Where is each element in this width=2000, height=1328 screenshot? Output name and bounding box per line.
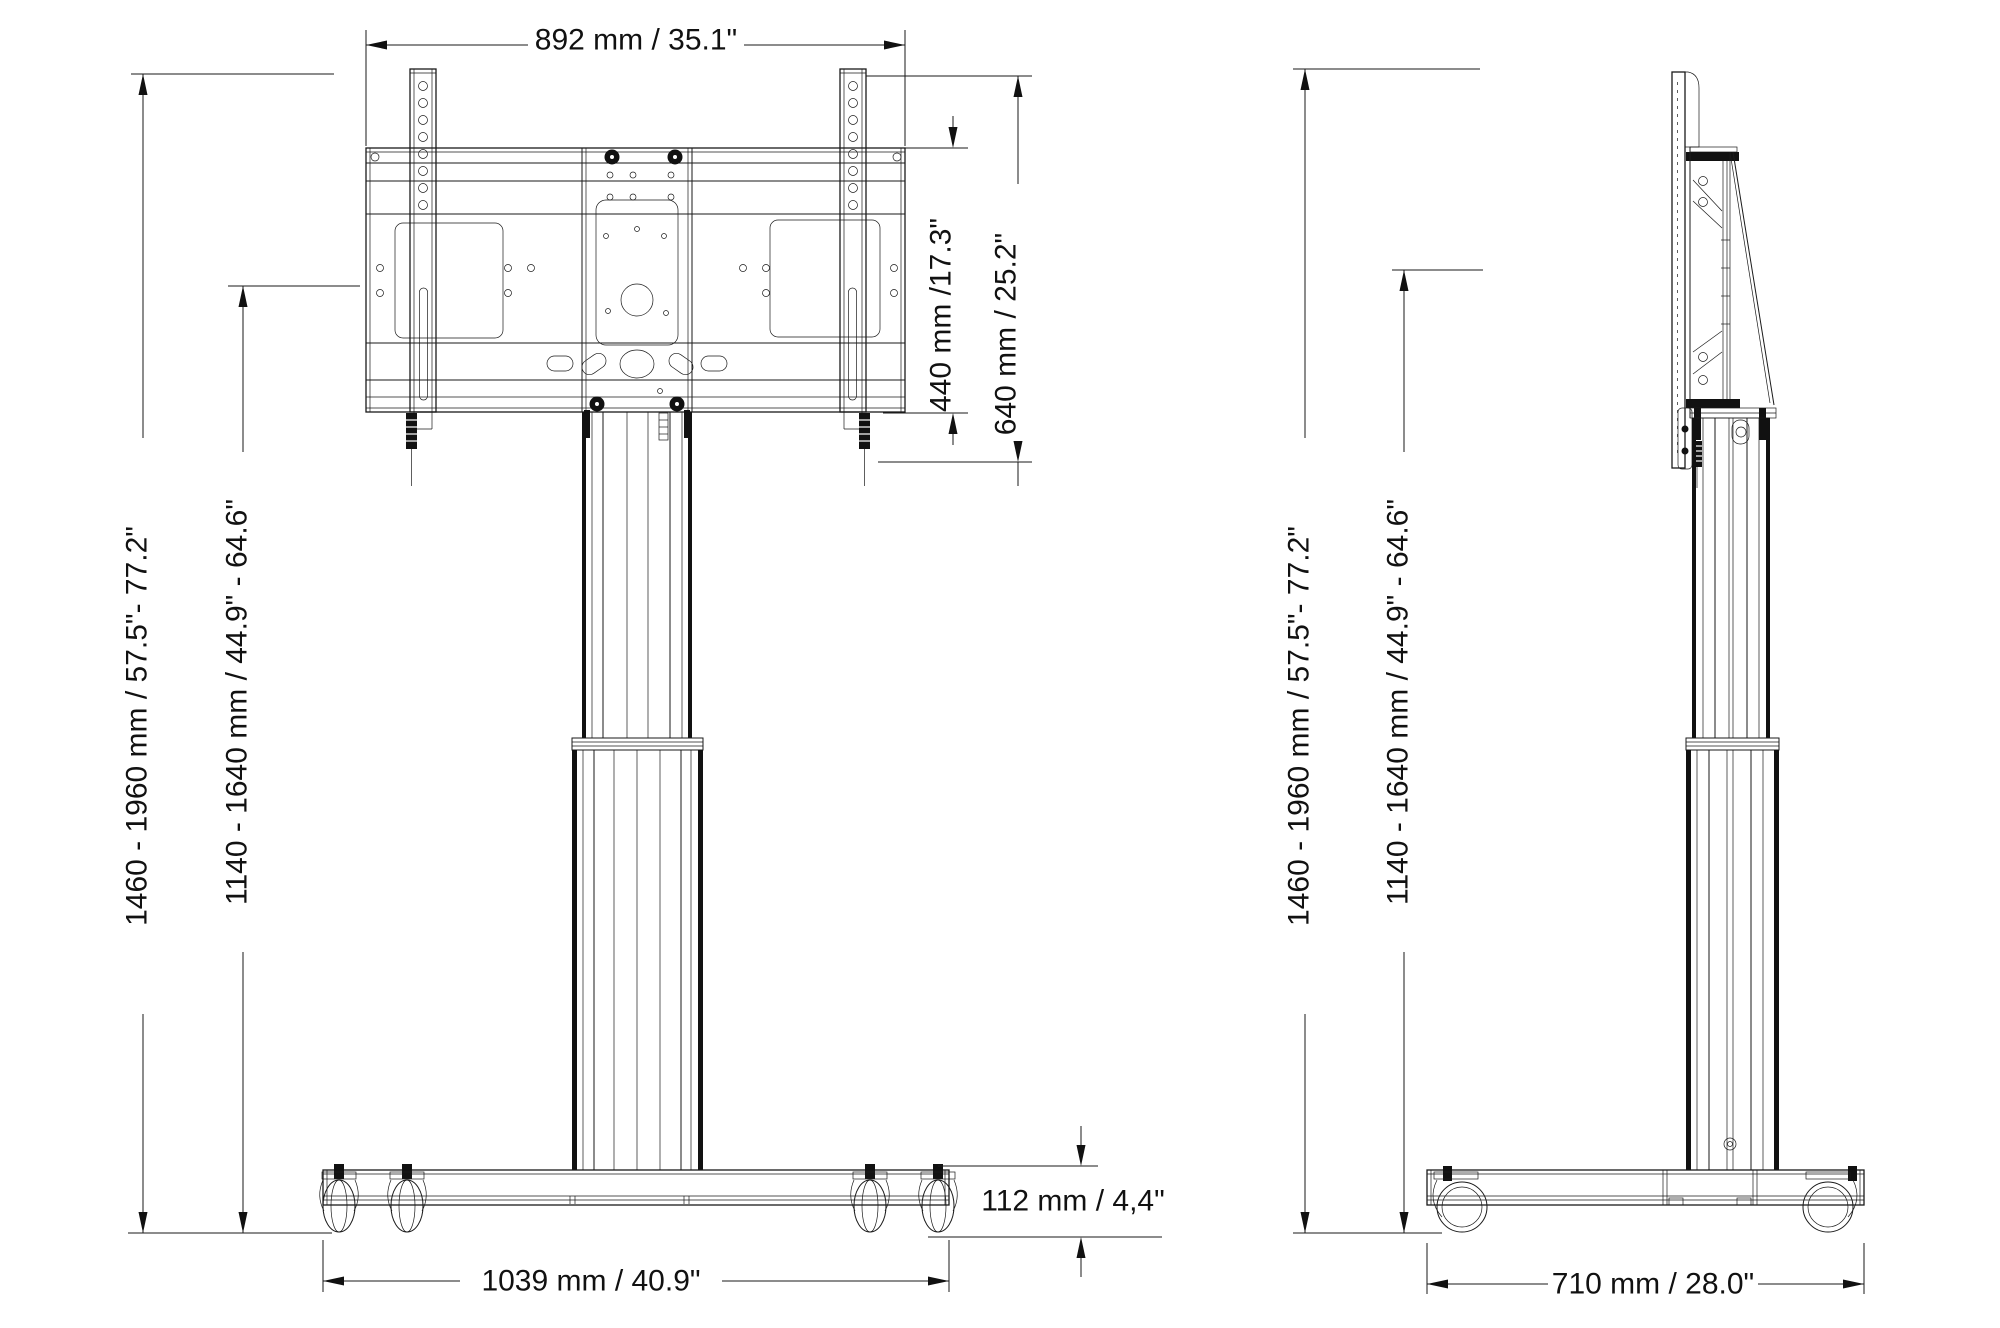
- center-hole: [621, 284, 653, 316]
- side-base: [1427, 1166, 1864, 1205]
- drawing-svg: 892 mm / 35.1" 440 mm /17.3" 640 mm / 25…: [0, 0, 2000, 1328]
- front-mounting-plate: [366, 148, 905, 412]
- dim-front-vesa-height: 440 mm /17.3": [883, 116, 968, 445]
- dim-front-screen-center-height: 1140 - 1640 mm / 44.9" - 64.6": [221, 286, 361, 1233]
- dim-label-front-base-height: 112 mm / 4,4": [981, 1185, 1165, 1218]
- dim-side-screen-center-height: 1140 - 1640 mm / 44.9" - 64.6": [1382, 270, 1484, 1233]
- front-vesa-rail-left: [406, 69, 436, 486]
- dim-label-side-screen-center-height: 1140 - 1640 mm / 44.9" - 64.6": [1382, 499, 1415, 905]
- dim-label-side-total-height: 1460 - 1960 mm / 57.5"- 77.2": [1283, 526, 1316, 926]
- side-column: [1686, 418, 1779, 1170]
- front-clamp-pins: [584, 410, 690, 440]
- dim-label-front-base-width: 1039 mm / 40.9": [481, 1265, 700, 1298]
- front-view: [320, 69, 958, 1232]
- front-base: [323, 1170, 949, 1205]
- front-vesa-rail-right: [840, 69, 870, 486]
- dim-front-base-height: 112 mm / 4,4": [928, 1126, 1165, 1277]
- dim-front-width: 892 mm / 35.1": [366, 24, 905, 147]
- dim-label-side-base-depth: 710 mm / 28.0": [1552, 1268, 1754, 1301]
- front-column: [572, 412, 703, 1170]
- side-clamp-pins: [1678, 408, 1766, 488]
- cutout-left: [395, 223, 503, 338]
- cutout-center: [596, 200, 678, 345]
- side-view: [1427, 72, 1864, 1232]
- cable-slots: [547, 350, 727, 378]
- cutout-right: [770, 220, 880, 337]
- dim-side-base-depth: 710 mm / 28.0": [1427, 1243, 1864, 1301]
- dim-label-front-mount-height: 640 mm / 25.2": [990, 233, 1023, 435]
- side-bracket: [1686, 147, 1776, 418]
- dim-label-front-vesa-height: 440 mm /17.3": [925, 218, 958, 412]
- plate-screws: [590, 150, 685, 412]
- dim-front-base-width: 1039 mm / 40.9": [323, 1240, 949, 1298]
- dim-label-front-total-height: 1460 - 1960 mm / 57.5"- 77.2": [121, 526, 154, 926]
- technical-drawing-canvas: 892 mm / 35.1" 440 mm /17.3" 640 mm / 25…: [0, 0, 2000, 1328]
- dim-label-front-screen-center-height: 1140 - 1640 mm / 44.9" - 64.6": [221, 499, 254, 905]
- plate-holes: [371, 153, 901, 394]
- dim-label-front-width: 892 mm / 35.1": [535, 24, 737, 57]
- side-caster-left: [1433, 1172, 1487, 1232]
